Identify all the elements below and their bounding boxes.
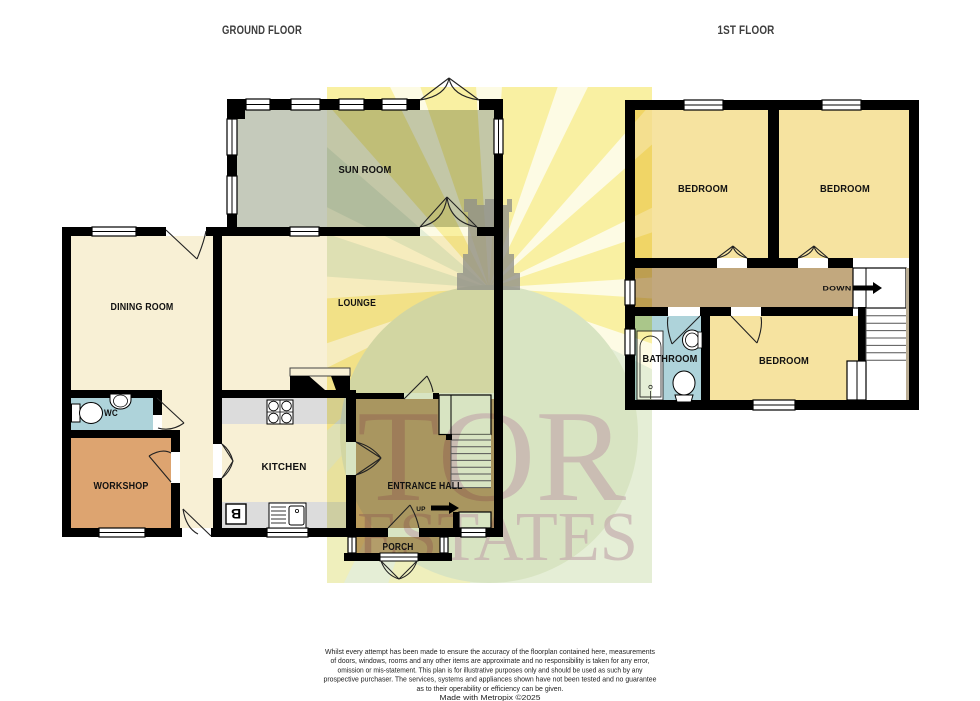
svg-text:Whilst every attempt has been: Whilst every attempt has been made to en… <box>325 647 655 656</box>
svg-text:DOWN: DOWN <box>823 286 852 293</box>
svg-text:KITCHEN: KITCHEN <box>262 462 307 473</box>
svg-text:omission or mis-statement. Thi: omission or mis-statement. This plan is … <box>338 665 643 674</box>
svg-text:LOUNGE: LOUNGE <box>338 298 376 309</box>
svg-text:GROUND FLOOR: GROUND FLOOR <box>222 25 302 37</box>
svg-text:UP: UP <box>416 506 426 513</box>
svg-text:WORKSHOP: WORKSHOP <box>94 481 149 492</box>
svg-text:of doors, windows, rooms and a: of doors, windows, rooms and any other i… <box>331 656 650 665</box>
svg-text:B: B <box>231 506 241 522</box>
svg-text:BEDROOM: BEDROOM <box>678 184 728 195</box>
svg-text:WC: WC <box>104 408 118 418</box>
svg-text:PORCH: PORCH <box>383 542 414 553</box>
svg-text:1ST FLOOR: 1ST FLOOR <box>718 25 775 37</box>
svg-text:BEDROOM: BEDROOM <box>759 356 809 367</box>
svg-text:BATHROOM: BATHROOM <box>643 354 698 365</box>
svg-text:ENTRANCE HALL: ENTRANCE HALL <box>388 481 463 492</box>
svg-text:Made with Metropix ©2025: Made with Metropix ©2025 <box>440 693 541 701</box>
svg-text:SUN ROOM: SUN ROOM <box>339 165 392 176</box>
svg-text:BEDROOM: BEDROOM <box>820 184 870 195</box>
svg-text:DINING ROOM: DINING ROOM <box>111 302 174 313</box>
svg-text:prospective purchaser. The ser: prospective purchaser. The services, sys… <box>324 675 657 684</box>
svg-text:as to their operability or eff: as to their operability or efficiency ca… <box>417 684 564 693</box>
